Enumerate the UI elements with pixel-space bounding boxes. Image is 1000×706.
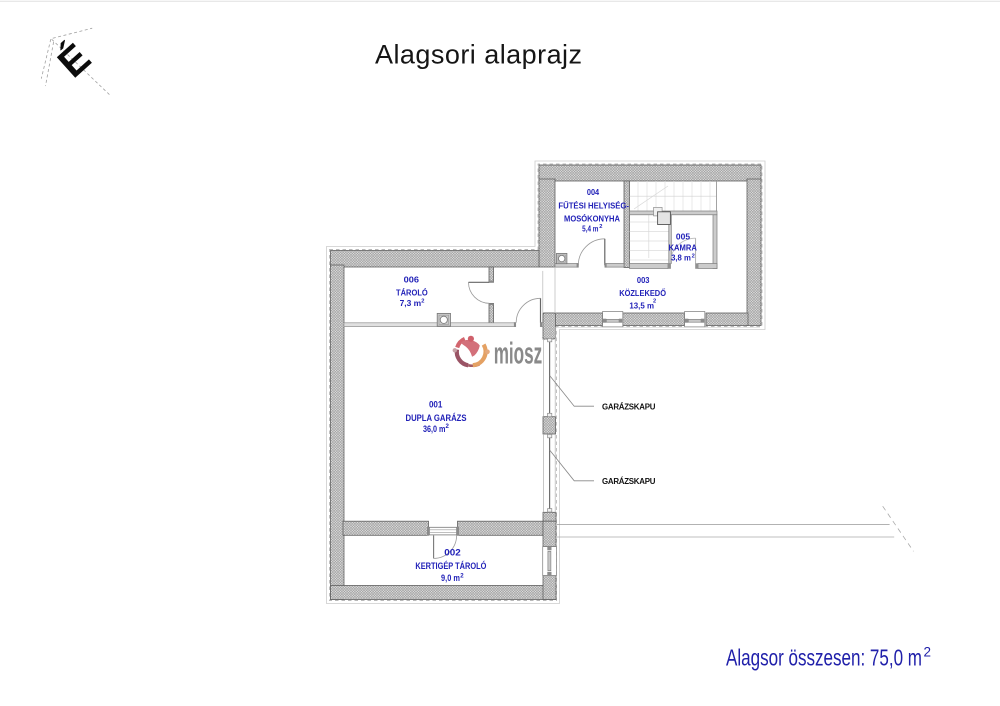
svg-text:13,5 m: 13,5 m xyxy=(629,300,654,310)
svg-text:36,0 m: 36,0 m xyxy=(423,424,446,434)
svg-text:Alagsori alaprajz: Alagsori alaprajz xyxy=(375,40,582,70)
svg-text:Alagsor összesen: 75,0 m: Alagsor összesen: 75,0 m xyxy=(726,645,922,671)
svg-text:miosz: miosz xyxy=(494,335,543,370)
svg-text:KERTIGÉP TÁROLÓ: KERTIGÉP TÁROLÓ xyxy=(415,560,486,571)
svg-text:5,4 m: 5,4 m xyxy=(582,224,598,233)
svg-text:002: 002 xyxy=(444,548,461,558)
svg-text:FŰTÉSI HELYISÉG-: FŰTÉSI HELYISÉG- xyxy=(558,199,629,210)
svg-text:2: 2 xyxy=(924,645,932,660)
svg-text:2: 2 xyxy=(599,224,602,230)
svg-text:2: 2 xyxy=(692,254,695,260)
svg-text:DUPLA GARÁZS: DUPLA GARÁZS xyxy=(406,413,467,423)
svg-text:GARÁZSKAPU: GARÁZSKAPU xyxy=(602,477,656,486)
svg-text:3,8 m: 3,8 m xyxy=(671,254,691,263)
svg-text:KÖZLEKEDŐ: KÖZLEKEDŐ xyxy=(619,287,666,298)
svg-text:9,0 m: 9,0 m xyxy=(441,573,460,583)
svg-text:TÁROLÓ: TÁROLÓ xyxy=(396,287,428,298)
svg-text:KAMRA: KAMRA xyxy=(669,244,697,253)
svg-text:005: 005 xyxy=(676,232,691,241)
svg-text:004: 004 xyxy=(587,188,600,197)
svg-text:003: 003 xyxy=(637,275,650,285)
svg-text:2: 2 xyxy=(421,298,424,304)
svg-text:001: 001 xyxy=(429,400,443,410)
svg-text:GARÁZSKAPU: GARÁZSKAPU xyxy=(602,402,656,411)
svg-text:7,3 m: 7,3 m xyxy=(400,298,422,308)
svg-text:006: 006 xyxy=(404,275,419,285)
svg-text:MOSÓKONYHA: MOSÓKONYHA xyxy=(564,213,620,224)
svg-text:2: 2 xyxy=(653,299,656,305)
